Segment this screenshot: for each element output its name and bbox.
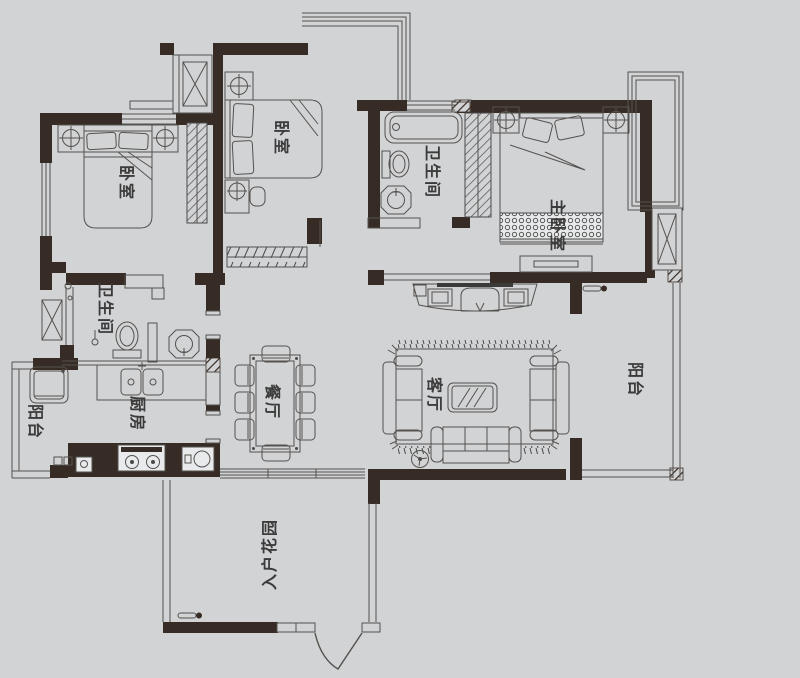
tv-cabinet <box>413 283 537 311</box>
partition <box>148 323 157 362</box>
tv-icon <box>461 288 499 311</box>
room-label-bathroom-top: 卫生间 <box>422 145 446 199</box>
duct-shaft <box>173 55 212 113</box>
wardrobe <box>187 123 207 223</box>
under-counter-sink <box>182 447 214 471</box>
bedroom-left-furniture <box>58 123 207 299</box>
tall-cabinet <box>206 372 220 405</box>
living-room-furniture <box>383 283 569 468</box>
kitchen-sink <box>121 362 163 395</box>
toilet <box>382 151 409 178</box>
lamp-icon <box>227 74 251 98</box>
room-label-bathroom-left: 卫生间 <box>95 282 119 336</box>
room-label-balcony-right: 阳台 <box>625 362 649 398</box>
shoe-cabinet <box>125 275 163 288</box>
room-label-dining: 餐厅 <box>262 384 286 420</box>
loveseat-right <box>530 356 569 440</box>
sliding-door <box>227 220 320 267</box>
small-box <box>54 457 62 465</box>
floor-plan-drawing <box>0 0 800 678</box>
cabinet <box>152 288 164 299</box>
washing-machine <box>30 367 68 403</box>
sliding-door-track <box>220 469 365 478</box>
room-label-bedroom-left: 卧室 <box>116 165 140 201</box>
floor-plan: 卧室 卧室 卫生间 主卧室 卫生间 厨房 餐厅 客厅 阳台 阳台 入户花园 <box>0 0 800 678</box>
loveseat-left <box>383 356 422 440</box>
stove <box>118 445 165 471</box>
rug <box>388 340 561 454</box>
column-shaft <box>648 208 682 276</box>
room-label-kitchen: 厨房 <box>127 396 151 432</box>
lamp-icon <box>59 126 83 150</box>
dresser <box>520 256 592 272</box>
room-label-balcony-left: 阳台 <box>25 404 49 440</box>
sofa <box>431 427 521 463</box>
bathroom-left-fixtures <box>62 283 206 365</box>
room-label-entry-garden: 入户花园 <box>256 518 280 590</box>
entry-door <box>315 633 362 669</box>
wall-fixture-icon <box>68 296 72 300</box>
wardrobe <box>465 113 491 217</box>
room-label-master-bedroom: 主卧室 <box>547 199 571 253</box>
room-label-living: 客厅 <box>424 377 448 413</box>
bathtub <box>385 112 462 143</box>
room-label-bedroom-middle: 卧室 <box>271 120 295 156</box>
coffee-table <box>448 383 497 412</box>
small-appliance <box>76 457 92 472</box>
bathroom-top-fixtures <box>368 112 462 228</box>
washbasin <box>169 330 199 358</box>
exterior-shaft <box>42 300 62 340</box>
lamp-icon <box>153 126 177 150</box>
desk-and-chair <box>225 180 265 213</box>
